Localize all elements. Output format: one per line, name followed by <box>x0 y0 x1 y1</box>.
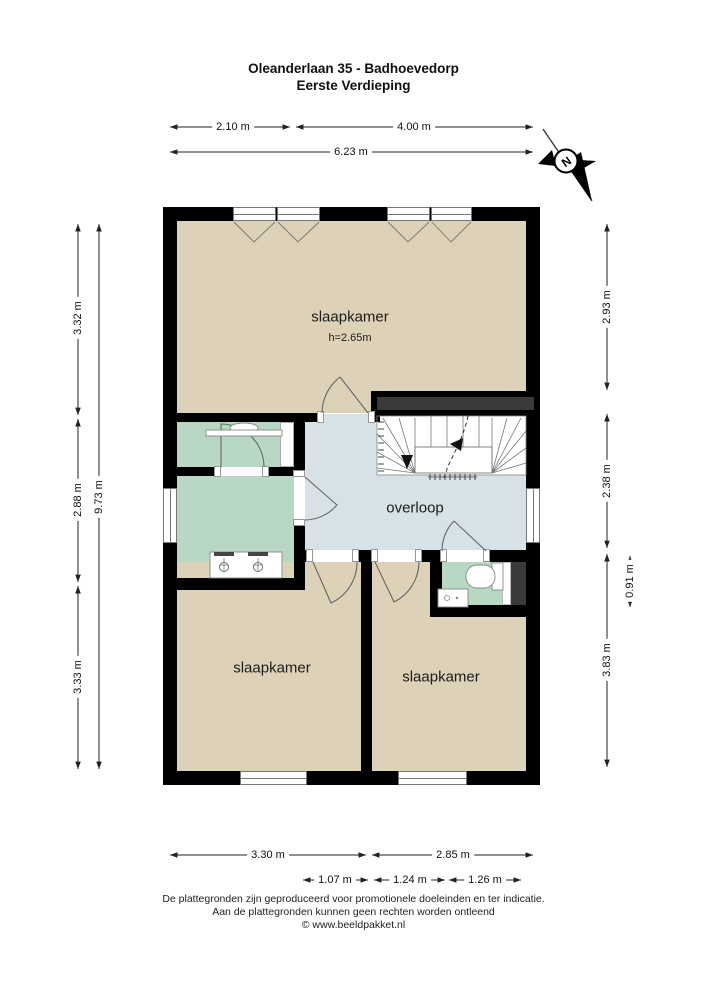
door-post <box>371 549 378 562</box>
stairs-floor <box>377 416 526 475</box>
dim-top-total: 6.23 m <box>330 146 372 158</box>
label-bedroom-top-height: h=2.65m <box>328 332 371 344</box>
label-bedroom-bottom-right: slaapkamer <box>402 669 480 686</box>
wall-landing-bottom-3 <box>420 550 442 562</box>
compass-n-label: N <box>559 154 574 170</box>
door-post <box>352 549 359 562</box>
title-floor: Eerste Verdieping <box>0 77 707 94</box>
door-post <box>415 549 422 562</box>
window-left-bathroom <box>163 488 177 543</box>
shaft <box>511 562 526 605</box>
dim-top-seg2: 4.00 m <box>393 121 435 133</box>
dim-bottom-seg2: 2.85 m <box>432 849 474 861</box>
dim-bottom-sub2: 1.24 m <box>389 874 431 886</box>
window-right-landing <box>526 488 540 543</box>
dim-right-seg2: 2.38 m <box>601 460 613 502</box>
compass-north-icon: N <box>538 129 596 201</box>
dim-left-total: 9.73 m <box>93 476 105 518</box>
room-utility <box>177 422 280 467</box>
window-top-1a <box>233 207 276 221</box>
wall-bedroomtop-bottom-left <box>163 413 322 422</box>
wall-toilet-bottom <box>430 605 526 617</box>
label-bedroom-bottom-left: slaapkamer <box>233 660 311 677</box>
dim-right-seg3: 3.83 m <box>601 639 613 681</box>
door-post <box>306 549 313 562</box>
page-title: Oleanderlaan 35 - Badhoevedorp Eerste Ve… <box>0 60 707 94</box>
wall-outer-top <box>163 207 540 221</box>
copyright: © www.beeldpakket.nl <box>0 919 707 932</box>
wall-landing-bottom-4 <box>487 550 526 562</box>
door-post <box>293 470 305 477</box>
door-post <box>317 411 324 423</box>
dim-left-seg1: 3.32 m <box>72 297 84 339</box>
floorplan-page: Oleanderlaan 35 - Badhoevedorp Eerste Ve… <box>0 0 707 1000</box>
door-post <box>262 466 269 477</box>
wall-utility-bath-left <box>163 467 218 476</box>
label-landing: overloop <box>386 500 444 517</box>
wall-landing-left-upper <box>294 422 305 475</box>
window-top-1b <box>277 207 320 221</box>
dim-right-seg1: 2.93 m <box>601 286 613 328</box>
wall-landing-bottom-2 <box>357 550 372 562</box>
window-top-2b <box>431 207 472 221</box>
door-post <box>214 466 221 477</box>
disclaimer: De plattegronden zijn geproduceerd voor … <box>0 893 707 932</box>
door-post <box>440 549 447 562</box>
window-bottom-right <box>398 771 467 785</box>
wall-outer-bottom <box>163 771 540 785</box>
dim-bottom-sub1: 1.07 m <box>314 874 356 886</box>
window-top-2a <box>387 207 430 221</box>
wall-landing-left-lower <box>294 520 305 578</box>
toilet-duct-strip <box>502 562 511 605</box>
dim-bottom-seg1: 3.30 m <box>247 849 289 861</box>
dim-top-seg1: 2.10 m <box>212 121 254 133</box>
dim-right-toilet: 0.91 m <box>624 560 636 602</box>
dim-bottom-sub3: 1.26 m <box>464 874 506 886</box>
wall-bedroom-divider <box>361 562 372 771</box>
dim-left-seg2: 2.88 m <box>72 479 84 521</box>
disclaimer-line1: De plattegronden zijn geproduceerd voor … <box>0 893 707 906</box>
room-toilet <box>442 562 502 605</box>
door-post <box>483 549 490 562</box>
title-address: Oleanderlaan 35 - Badhoevedorp <box>0 60 707 77</box>
disclaimer-line2: Aan de plattegronden kunnen geen rechten… <box>0 906 707 919</box>
door-post <box>293 519 305 526</box>
wall-bathroom-bottom <box>163 578 305 590</box>
label-bedroom-top: slaapkamer <box>311 309 389 326</box>
utility-closet <box>280 422 294 467</box>
door-post <box>368 411 375 423</box>
window-bottom-left <box>240 771 307 785</box>
wall-stair-band-inner <box>377 397 534 410</box>
dim-left-seg3: 3.33 m <box>72 656 84 698</box>
